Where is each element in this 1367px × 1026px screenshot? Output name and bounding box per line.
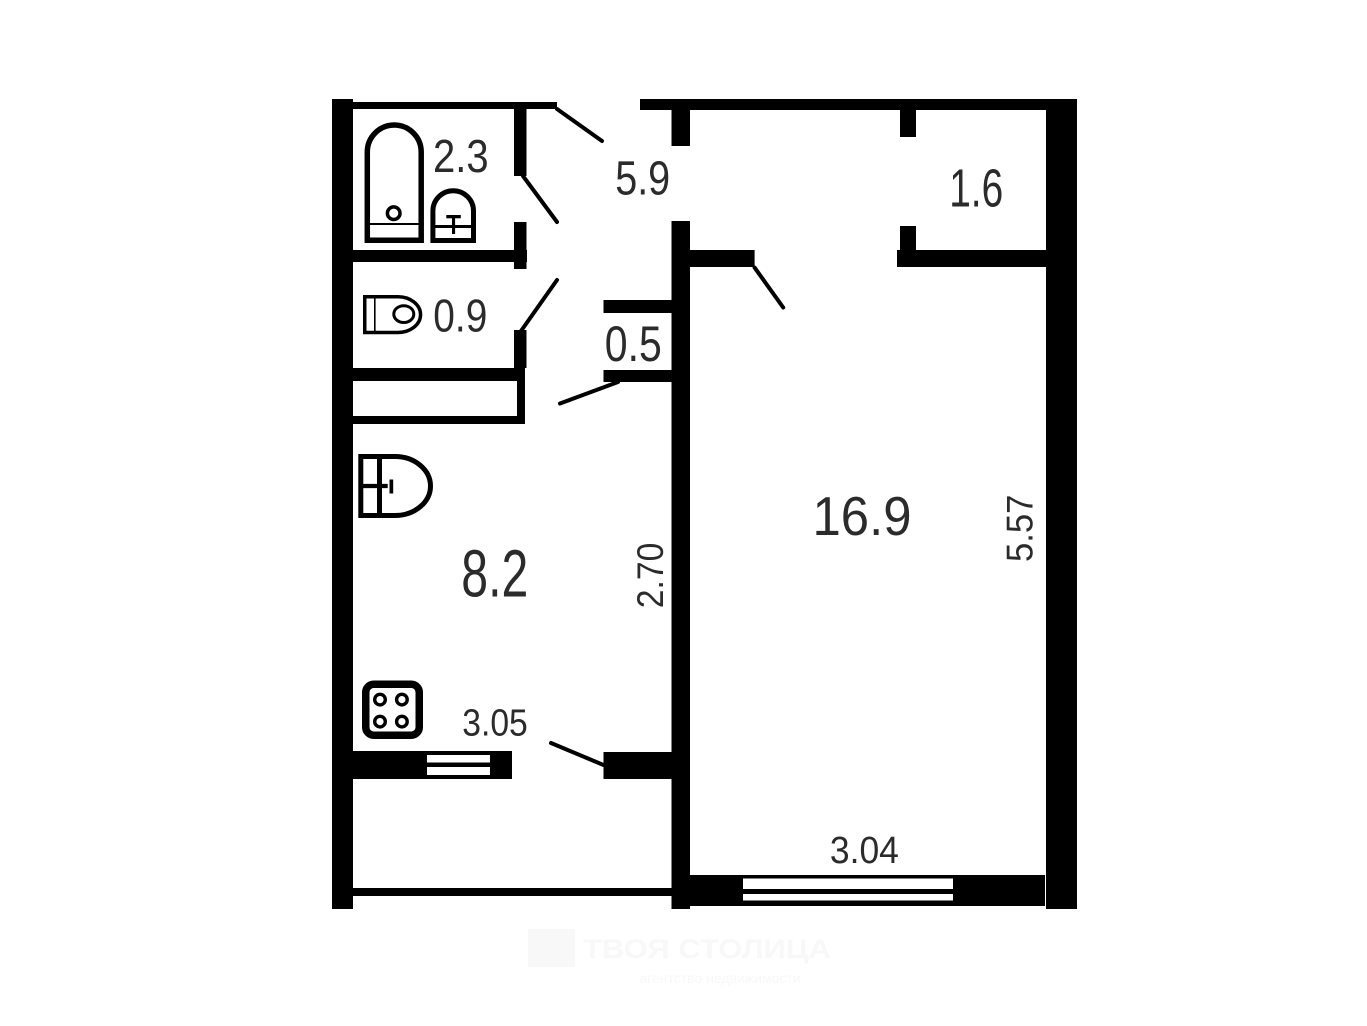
svg-text:3.04: 3.04 (830, 829, 899, 872)
svg-text:2.70: 2.70 (629, 543, 671, 609)
svg-text:16.9: 16.9 (813, 485, 912, 547)
svg-text:0.5: 0.5 (605, 316, 662, 372)
svg-text:3.05: 3.05 (462, 701, 528, 743)
svg-text:агентство недвижимости: агентство недвижимости (639, 970, 800, 986)
svg-text:8.2: 8.2 (461, 537, 528, 611)
svg-text:1.6: 1.6 (949, 159, 1003, 218)
svg-text:5.9: 5.9 (615, 152, 670, 205)
svg-text:5.57: 5.57 (999, 495, 1041, 563)
svg-text:0.9: 0.9 (433, 289, 487, 341)
svg-text:ТВОЯ СТОЛИЦА: ТВОЯ СТОЛИЦА (583, 934, 831, 964)
svg-text:2.3: 2.3 (433, 130, 489, 182)
